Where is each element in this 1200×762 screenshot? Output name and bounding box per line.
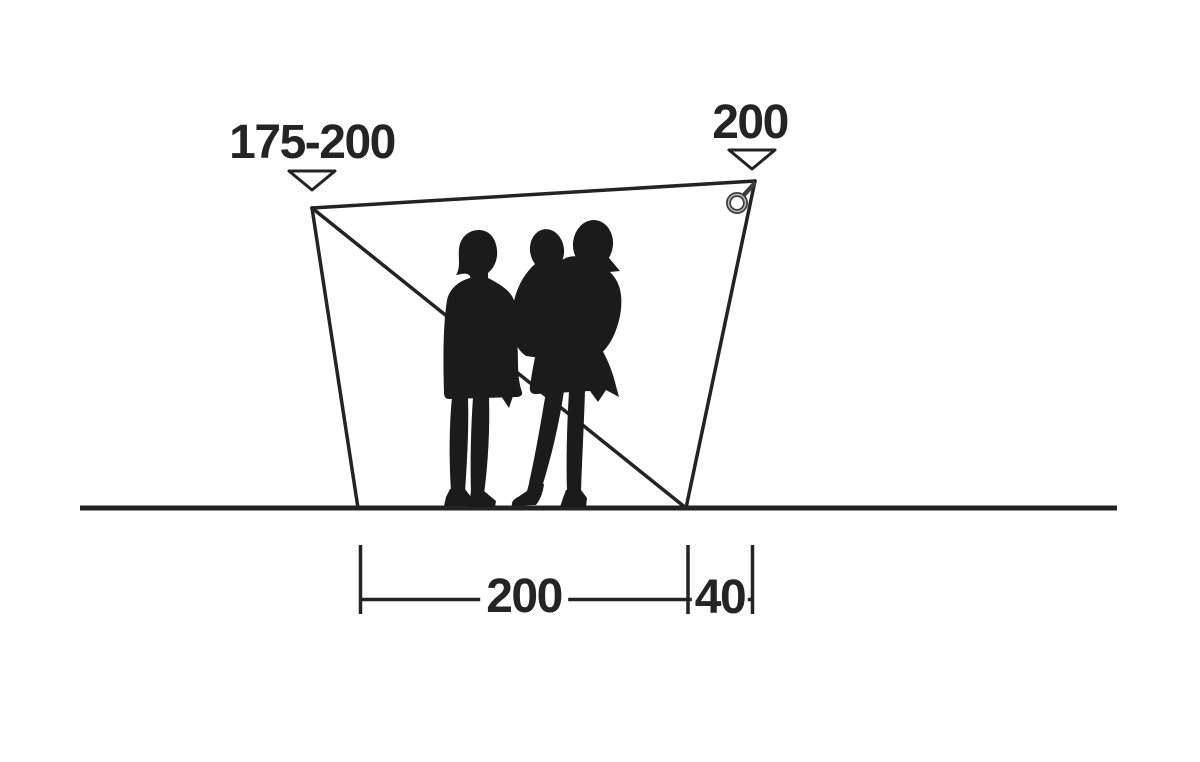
figure-adult-silhouette [443,230,522,507]
dimension-label-floor-width: 200 [480,573,568,621]
figure-left-back-foot [444,489,471,506]
dimension-label-peak-left: 175-200 [223,119,401,167]
tent-right-edge [686,181,755,508]
dimension-label-overhang: 40 [692,574,748,622]
figure-left-head [456,230,497,281]
triangle-down-marker-right [729,150,775,169]
figure-right-front-foot [512,480,544,506]
tent-dimension-drawing [0,0,1200,762]
figure-adult-with-child-silhouette [512,218,622,507]
figure-left-back-leg [450,397,469,492]
dimension-label-peak-right: 200 [706,99,794,147]
figure-left-front-foot [469,491,496,507]
tent-top-edge [312,181,755,208]
triangle-down-marker-left [289,171,335,190]
figure-right-torso [512,256,622,358]
diagram-canvas: 175-200 200 200 40 [0,0,1200,762]
figure-left-torso [443,278,522,399]
figure-left-front-leg [471,397,490,494]
figure-left-skirt-drape [501,396,513,408]
tent-left-edge [312,208,358,508]
figure-right-front-leg [529,391,564,487]
figure-right-back-leg [567,390,585,492]
figure-right-back-foot [560,490,587,507]
